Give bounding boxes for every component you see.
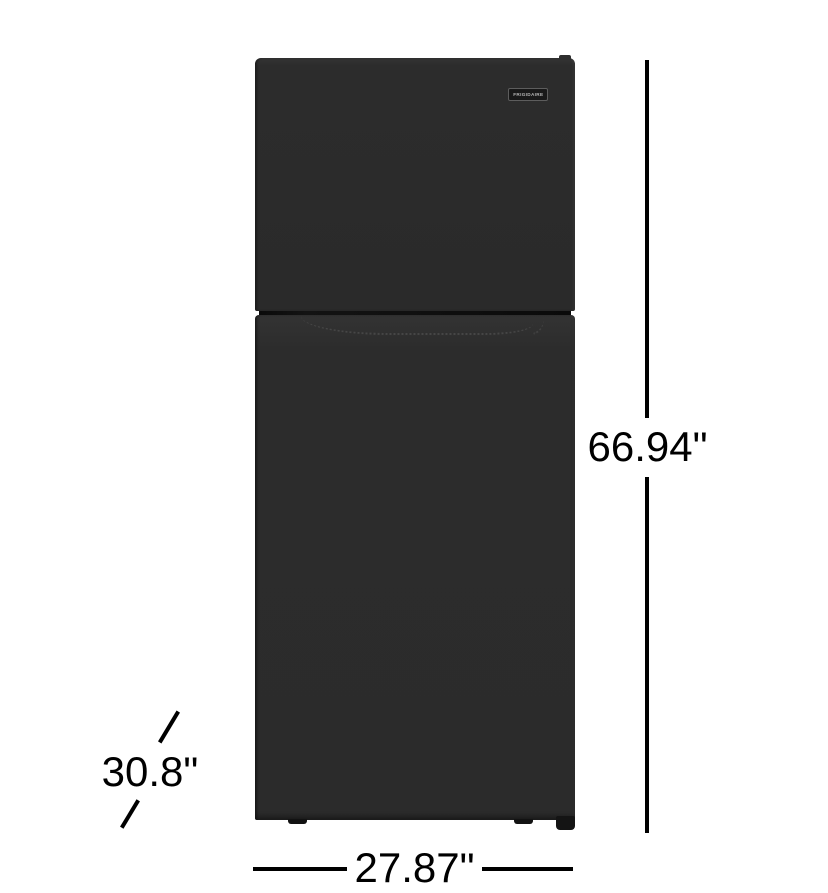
door-handle-recess-end bbox=[529, 315, 547, 335]
refrigerator-image: FRIGIDAIRE bbox=[255, 58, 575, 820]
width-dimension-label: 27.87" bbox=[347, 845, 482, 891]
frigidaire-logo-badge: FRIGIDAIRE bbox=[508, 88, 548, 101]
door-hinge-cover bbox=[559, 55, 571, 60]
left-foot bbox=[288, 819, 307, 824]
freezer-door: FRIGIDAIRE bbox=[255, 58, 575, 311]
right-roller-foot bbox=[556, 816, 575, 830]
height-dimension-label: 66.94" bbox=[575, 424, 720, 470]
depth-dimension-line-upper bbox=[158, 711, 180, 744]
refrigerator-door bbox=[255, 315, 575, 820]
right-foot bbox=[514, 819, 533, 824]
door-handle-recess bbox=[301, 316, 533, 335]
height-dimension-line-lower bbox=[645, 477, 649, 833]
width-dimension-line-left bbox=[253, 867, 347, 871]
product-dimension-diagram: FRIGIDAIRE 66.94" 30.8" 27.87" bbox=[0, 0, 828, 893]
depth-dimension-line-lower bbox=[120, 799, 140, 828]
frigidaire-logo-text: FRIGIDAIRE bbox=[513, 92, 543, 97]
height-dimension-line-upper bbox=[645, 60, 649, 418]
depth-dimension-label: 30.8" bbox=[95, 749, 205, 795]
width-dimension-line-right bbox=[482, 867, 573, 871]
